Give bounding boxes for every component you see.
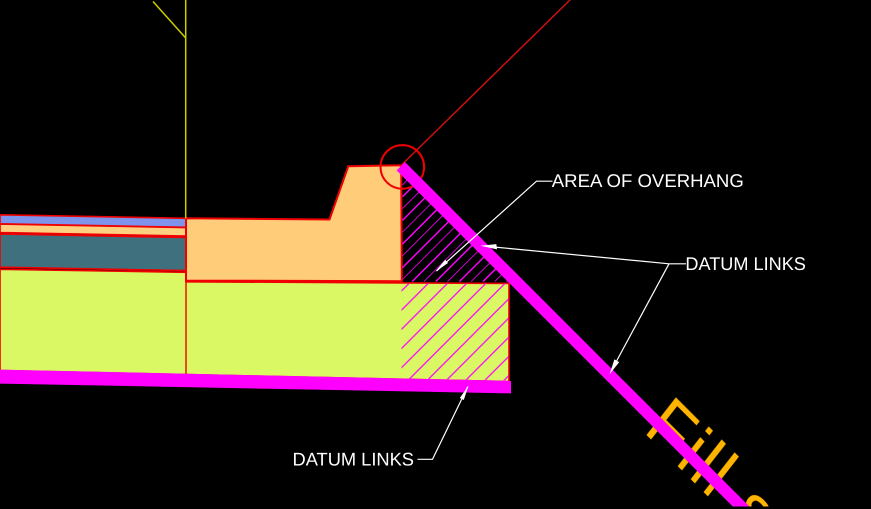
svg-text:DATUM LINKS: DATUM LINKS bbox=[293, 449, 415, 470]
svg-text:AREA OF OVERHANG: AREA OF OVERHANG bbox=[552, 170, 744, 191]
svg-text:DATUM LINKS: DATUM LINKS bbox=[685, 253, 806, 274]
